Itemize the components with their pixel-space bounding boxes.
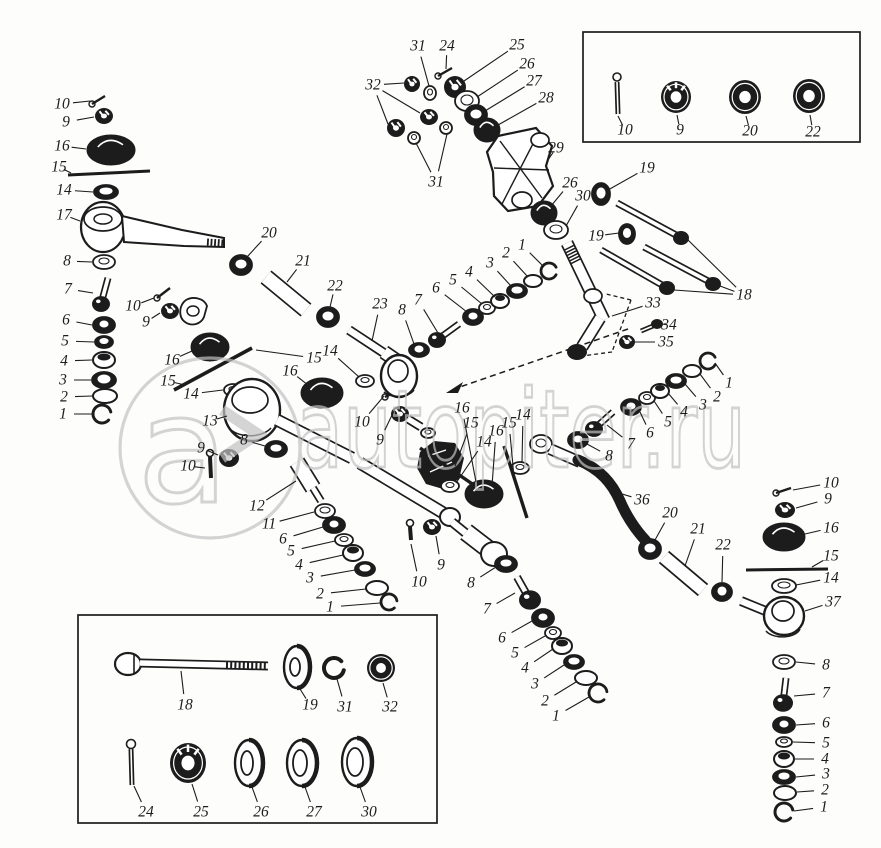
- callout-3: 3: [485, 255, 494, 272]
- callout-9: 9: [62, 114, 70, 131]
- callout-4: 4: [60, 353, 68, 370]
- ring-5-hole: [484, 305, 491, 310]
- leader-line-26: [551, 191, 563, 206]
- ball-pin-7-ball: [773, 694, 793, 712]
- snap-ring-1: [775, 803, 793, 821]
- watermark-text: autopiter.ru: [296, 368, 746, 493]
- callout-18: 18: [177, 697, 193, 714]
- leader-line-24: [134, 786, 141, 802]
- callout-31: 31: [336, 699, 353, 716]
- callout-8: 8: [467, 575, 475, 592]
- leader-line-12: [266, 481, 296, 500]
- lock-washer-31: [324, 658, 344, 678]
- bracket-29-boss: [512, 192, 532, 208]
- leader-line-15: [812, 560, 823, 567]
- leader-line-26: [477, 70, 518, 97]
- callout-4: 4: [465, 264, 473, 281]
- callout-17: 17: [56, 207, 73, 224]
- callout-14: 14: [823, 570, 839, 587]
- spring-seat-4-top: [495, 295, 505, 301]
- callout-15: 15: [160, 373, 176, 390]
- leader-line-3: [497, 271, 511, 286]
- callout-35: 35: [657, 334, 674, 351]
- callout-20: 20: [261, 225, 277, 242]
- leader-line-8: [77, 261, 92, 262]
- spring-seat-4-top: [778, 753, 790, 760]
- leader-line-11: [280, 512, 314, 521]
- leader-line-9: [796, 502, 817, 508]
- leader-line-2: [554, 682, 576, 695]
- callout-14: 14: [56, 182, 72, 199]
- callout-9: 9: [437, 557, 445, 574]
- callout-2: 2: [502, 245, 510, 262]
- callout-7: 7: [64, 281, 73, 298]
- callout-2: 2: [713, 389, 721, 406]
- leader-line-21: [685, 539, 694, 566]
- callout-31: 31: [409, 38, 426, 55]
- ball-pin-7-ball: [428, 332, 446, 348]
- leader-line-23: [372, 315, 378, 341]
- leader-line-7: [497, 593, 515, 604]
- callout-7: 7: [822, 685, 831, 702]
- callout-15: 15: [823, 548, 839, 565]
- callout-4: 4: [680, 404, 688, 421]
- leader-line-6: [445, 295, 467, 312]
- callout-20: 20: [662, 505, 678, 522]
- leader-line-3: [321, 570, 355, 576]
- callout-34: 34: [660, 317, 677, 334]
- callout-8: 8: [240, 432, 248, 449]
- leader-line-26: [252, 787, 257, 802]
- leader-line-27: [485, 87, 525, 111]
- leader-line-6: [294, 527, 323, 536]
- washer-3-hole: [98, 375, 110, 383]
- callout-12: 12: [249, 498, 265, 515]
- leader-line-37: [805, 605, 823, 611]
- leader-line-14: [522, 426, 523, 462]
- washer-30-hole: [550, 225, 562, 233]
- callout-10: 10: [823, 475, 839, 492]
- castle-nut-25-hole: [181, 755, 195, 771]
- callout-22: 22: [805, 124, 821, 141]
- ball-pin-7-ball-highlight: [778, 698, 783, 702]
- dust-cover-16: [87, 135, 135, 165]
- washer-3-hole: [779, 773, 789, 779]
- washer-31-hole: [428, 89, 433, 95]
- leader-line-7: [794, 694, 815, 696]
- callout-19: 19: [639, 160, 655, 177]
- diagram-page: a autopiter.ru 1091615141787654321109161…: [0, 0, 881, 848]
- leader-line-19: [608, 173, 637, 190]
- leader-line-22: [330, 294, 333, 307]
- callout-13: 13: [202, 413, 218, 430]
- leader-line-8: [796, 662, 815, 664]
- callout-26: 26: [519, 56, 535, 73]
- cap-2: [774, 786, 796, 800]
- washer-27-hole: [293, 750, 307, 776]
- callout-15: 15: [51, 159, 67, 176]
- callout-5: 5: [449, 272, 457, 289]
- nut-20-hole: [739, 90, 752, 104]
- callout-3: 3: [821, 766, 830, 783]
- spring-seat-4-top: [556, 640, 568, 647]
- ball-pin-7-ball: [92, 296, 110, 312]
- callout-3: 3: [530, 676, 539, 693]
- callout-10: 10: [125, 298, 141, 315]
- leader-line-6: [512, 621, 532, 633]
- inset-box-bottom-left: [78, 615, 437, 823]
- leader-line-7: [424, 309, 438, 333]
- leader-line-27: [305, 787, 310, 802]
- leader-line-24: [446, 55, 447, 69]
- leader-line-14: [796, 580, 820, 585]
- callout-9: 9: [197, 440, 205, 457]
- callout-9: 9: [824, 491, 832, 508]
- spring-bar-15: [68, 171, 150, 175]
- callout-6: 6: [646, 425, 654, 442]
- callout-21: 21: [690, 521, 706, 538]
- callout-19: 19: [588, 228, 604, 245]
- callout-4: 4: [521, 660, 529, 677]
- callout-1: 1: [725, 375, 733, 392]
- nut-32-hole: [375, 662, 386, 673]
- callout-6: 6: [432, 280, 440, 297]
- leader-line-4: [310, 555, 343, 563]
- callout-32: 32: [364, 77, 381, 94]
- leader-line-10: [793, 485, 820, 490]
- leader-line-1: [341, 603, 380, 606]
- callout-1: 1: [518, 237, 526, 254]
- leader-line-28: [498, 103, 536, 125]
- leader-line-16: [805, 530, 821, 534]
- leader-line-2: [797, 791, 814, 792]
- leader-line-31: [337, 679, 342, 696]
- callout-22: 22: [715, 537, 731, 554]
- leader-line-1: [566, 697, 589, 711]
- leader-line-33: [612, 306, 643, 316]
- ball-housing-13-top: [232, 387, 268, 413]
- callout-8: 8: [822, 657, 830, 674]
- leader-line-15: [256, 350, 303, 356]
- cap-2: [93, 389, 117, 403]
- seal-ring-14-hole: [778, 582, 790, 588]
- callout-24: 24: [439, 38, 455, 55]
- washer-19-hole: [290, 658, 300, 676]
- callout-10: 10: [180, 458, 196, 475]
- washer-8-hole: [99, 258, 109, 264]
- bolt-18-head: [659, 281, 675, 295]
- callout-9: 9: [676, 122, 684, 139]
- callout-18: 18: [736, 287, 752, 304]
- cotter-pin-10-face: [617, 82, 618, 114]
- callout-30: 30: [360, 804, 377, 821]
- washer-31-hole: [412, 135, 417, 140]
- callout-9: 9: [142, 314, 150, 331]
- callout-7: 7: [627, 436, 636, 453]
- washer-19-hole: [624, 229, 631, 238]
- callout-37: 37: [824, 594, 842, 611]
- leader-line-10: [141, 298, 154, 303]
- callout-2: 2: [821, 782, 829, 799]
- callout-9: 9: [376, 432, 384, 449]
- washer-3-hole: [512, 287, 522, 293]
- snap-ring-1: [93, 405, 111, 423]
- callout-7: 7: [483, 601, 492, 618]
- phantom-line: [606, 294, 631, 300]
- seat-6-hole: [330, 521, 338, 527]
- callout-28: 28: [538, 90, 554, 107]
- leader-line-10: [411, 544, 417, 571]
- callout-5: 5: [61, 333, 69, 350]
- leader-line-19: [605, 233, 619, 235]
- leader-line-5: [302, 541, 335, 549]
- callout-25: 25: [509, 37, 525, 54]
- idler-shaft-33-face: [567, 243, 604, 320]
- snap-ring-1: [700, 353, 715, 369]
- ball-pin-7-ball-highlight: [524, 595, 530, 599]
- leader-line-2: [331, 589, 366, 593]
- callout-36: 36: [633, 492, 650, 509]
- washer-8-hole: [271, 445, 281, 451]
- leader-line-6: [796, 724, 815, 725]
- leader-line-3: [544, 665, 564, 678]
- leader-line-1: [530, 253, 544, 267]
- callout-1: 1: [552, 708, 560, 725]
- callout-16: 16: [282, 363, 298, 380]
- callout-29: 29: [548, 140, 564, 157]
- leader-line-31: [416, 143, 431, 172]
- callout-14: 14: [322, 343, 338, 360]
- leader-line-16: [72, 147, 86, 149]
- leader-line-5: [525, 636, 545, 648]
- leader-line-30: [360, 787, 365, 802]
- leader-line-16: [180, 351, 192, 356]
- callout-3: 3: [305, 570, 314, 587]
- callout-27: 27: [306, 804, 323, 821]
- bolt-18-face: [644, 247, 708, 281]
- leader-line-5: [76, 341, 94, 342]
- nut-20-hole: [645, 544, 655, 552]
- callout-7: 7: [414, 292, 423, 309]
- callout-19: 19: [302, 697, 318, 714]
- seal-ring-14-hole: [100, 188, 112, 194]
- leader-line-9: [77, 117, 94, 120]
- washer-31-hole: [444, 125, 449, 130]
- callout-4: 4: [295, 557, 303, 574]
- washer-3-hole: [360, 565, 370, 571]
- leader-line-25: [192, 784, 198, 802]
- callout-25: 25: [193, 804, 209, 821]
- callout-5: 5: [822, 735, 830, 752]
- callout-8: 8: [63, 253, 71, 270]
- callout-22: 22: [327, 278, 343, 295]
- seat-6-hole: [469, 313, 477, 319]
- leader-line-32: [383, 683, 387, 697]
- ball-pin-7-ball: [519, 590, 541, 609]
- idler-shaft-33-collar: [584, 289, 602, 303]
- leader-line-18: [720, 286, 734, 291]
- callout-5: 5: [664, 414, 672, 431]
- spring-bar-15: [746, 569, 828, 570]
- callout-31: 31: [427, 174, 444, 191]
- callout-24: 24: [138, 804, 154, 821]
- callout-16: 16: [54, 138, 70, 155]
- leader-line-1: [794, 808, 813, 811]
- snap-ring-1: [381, 594, 397, 610]
- leader-line-2: [513, 261, 528, 277]
- callout-5: 5: [287, 543, 295, 560]
- leader-line-9: [152, 313, 160, 318]
- leader-line-5: [793, 742, 815, 743]
- washer-27-hole: [471, 110, 481, 118]
- bolt-18-head: [705, 277, 721, 291]
- spring-seat-4-top: [347, 547, 359, 554]
- cap-2: [575, 671, 597, 685]
- leader-line-5: [461, 287, 482, 304]
- callout-16: 16: [823, 520, 839, 537]
- callout-6: 6: [822, 715, 830, 732]
- ring-5-hole: [100, 339, 108, 344]
- callout-10: 10: [617, 122, 633, 139]
- washer-30-hole: [347, 748, 363, 776]
- leader-line-18: [181, 671, 184, 694]
- cap-2: [524, 275, 542, 287]
- adjusting-sleeve-21-face: [664, 557, 703, 590]
- callout-33: 33: [644, 295, 661, 312]
- cotter-pin-10-head: [407, 520, 414, 527]
- leader-line-25: [464, 51, 508, 81]
- callout-21: 21: [295, 253, 311, 270]
- ring-5-hole: [550, 630, 557, 635]
- callout-6: 6: [279, 531, 287, 548]
- leader-line-4: [477, 280, 495, 297]
- nut-22-hole: [718, 587, 726, 595]
- callout-16: 16: [164, 352, 180, 369]
- leader-line-6: [76, 322, 92, 325]
- adjusting-sleeve-21-face: [266, 277, 306, 310]
- callout-2: 2: [60, 389, 68, 406]
- castle-nut-9-hole: [670, 91, 682, 104]
- leader-line-31: [438, 134, 447, 171]
- callout-3: 3: [58, 372, 67, 389]
- leader-line-2: [75, 396, 92, 397]
- callout-32: 32: [381, 699, 398, 716]
- cotter-pin-10: [92, 96, 105, 104]
- leader-line-32: [377, 95, 388, 124]
- washer-8-hole: [779, 658, 789, 664]
- leader-line-8: [406, 320, 414, 344]
- leader-line-8: [252, 442, 265, 446]
- leader-line-22: [722, 556, 723, 582]
- seat-6-hole: [780, 721, 788, 727]
- callout-6: 6: [498, 630, 506, 647]
- leader-line-20: [247, 241, 262, 257]
- ring-5-hole: [781, 739, 788, 743]
- ball-pin-7-ball-highlight: [432, 336, 437, 340]
- callout-26: 26: [253, 804, 269, 821]
- snap-ring-1: [541, 263, 556, 279]
- callout-20: 20: [742, 123, 758, 140]
- leader-line-18: [674, 290, 733, 294]
- leader-line-20: [655, 523, 665, 540]
- leader-line-7: [78, 291, 93, 293]
- leader-line-21: [287, 269, 297, 282]
- leader-line-4: [75, 360, 92, 361]
- callout-10: 10: [354, 414, 370, 431]
- callout-6: 6: [62, 312, 70, 329]
- callout-1: 1: [326, 599, 334, 616]
- ring-11-hole: [320, 507, 330, 513]
- clamp-lug-hole: [187, 306, 199, 316]
- seat-6-hole: [100, 321, 108, 327]
- ring-5-hole: [340, 537, 348, 542]
- callout-15: 15: [306, 350, 322, 367]
- leader-line-30: [566, 206, 578, 226]
- callout-27: 27: [526, 73, 543, 90]
- leader-line-32: [384, 83, 404, 84]
- callout-1: 1: [820, 799, 828, 816]
- callout-2: 2: [541, 693, 549, 710]
- steering-linkage-exploded-diagram: a autopiter.ru 1091615141787654321109161…: [0, 0, 881, 848]
- spring-seat-4-top: [98, 354, 111, 361]
- leader-line-10: [73, 101, 90, 103]
- callout-8: 8: [398, 302, 406, 319]
- leader-line-32: [382, 91, 420, 113]
- leader-line-31: [421, 57, 429, 86]
- callout-14: 14: [183, 386, 199, 403]
- nut-22-hole: [323, 312, 333, 320]
- nut-22-hole: [803, 89, 816, 103]
- leader-line-9: [436, 536, 439, 554]
- tie-rod-end-37-hole: [772, 601, 794, 621]
- washer-8-hole: [501, 560, 511, 566]
- leader-line-4: [534, 649, 553, 662]
- washer-3-hole: [569, 658, 579, 664]
- callout-8: 8: [605, 448, 613, 465]
- callout-15: 15: [463, 415, 479, 432]
- washer-26-hole: [461, 95, 473, 105]
- callout-11: 11: [262, 516, 276, 533]
- leader-line-8: [480, 567, 496, 577]
- snap-ring-1: [589, 684, 607, 702]
- cap-2: [366, 581, 388, 595]
- cotter-pin-10-head: [613, 73, 621, 81]
- cotter-pin-24-head: [127, 740, 136, 749]
- washer-26-hole: [241, 751, 253, 775]
- callout-3: 3: [698, 397, 707, 414]
- seat-6-hole: [539, 614, 547, 620]
- bolt-18-head: [115, 653, 141, 675]
- callout-1: 1: [59, 406, 67, 423]
- bolt-18-head: [673, 231, 689, 245]
- leader-line-14: [75, 191, 93, 192]
- callout-30: 30: [574, 188, 591, 205]
- nut-20-hole: [236, 260, 246, 268]
- callout-14: 14: [515, 407, 531, 424]
- cotter-pin-10: [410, 527, 411, 540]
- leader-line-3: [796, 775, 815, 777]
- washer-8-hole: [415, 346, 423, 352]
- callout-23: 23: [372, 296, 388, 313]
- callout-10: 10: [54, 96, 70, 113]
- callout-10: 10: [411, 574, 427, 591]
- ball-pin-7-ball-highlight: [96, 300, 101, 304]
- washer-19-hole: [597, 188, 605, 198]
- callout-2: 2: [316, 586, 324, 603]
- callout-5: 5: [511, 645, 519, 662]
- cotter-pin-24-face: [131, 749, 132, 785]
- bracket-29-boss: [531, 133, 549, 147]
